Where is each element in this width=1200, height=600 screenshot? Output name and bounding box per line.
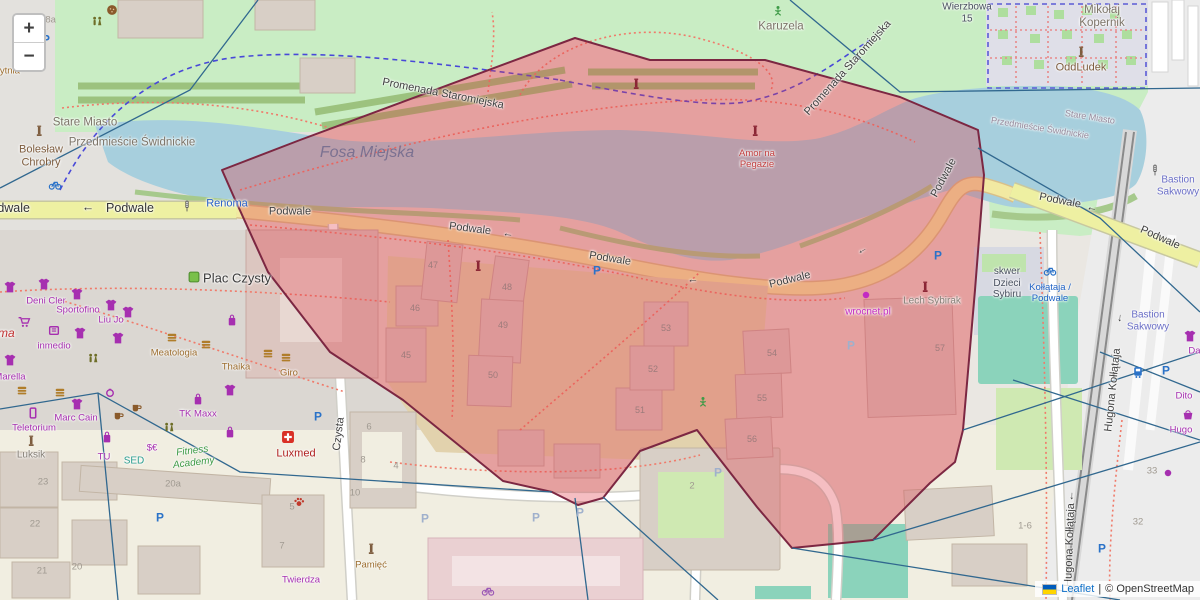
attribution-bar: Leaflet | © OpenStreetMap bbox=[1035, 581, 1200, 597]
zoom-out-button[interactable]: − bbox=[14, 42, 44, 70]
base-map bbox=[0, 0, 1200, 600]
ukraine-flag-icon bbox=[1042, 584, 1057, 595]
zoom-control: + − bbox=[12, 13, 46, 72]
map-viewport[interactable]: Podwale←PodwalePodwalePodwale←Podwale←Po… bbox=[0, 0, 1200, 600]
leaflet-link[interactable]: Leaflet bbox=[1061, 583, 1094, 595]
openstreetmap-link[interactable]: © OpenStreetMap bbox=[1105, 583, 1194, 595]
attribution-separator: | bbox=[1098, 583, 1101, 595]
zoom-in-button[interactable]: + bbox=[14, 15, 44, 42]
